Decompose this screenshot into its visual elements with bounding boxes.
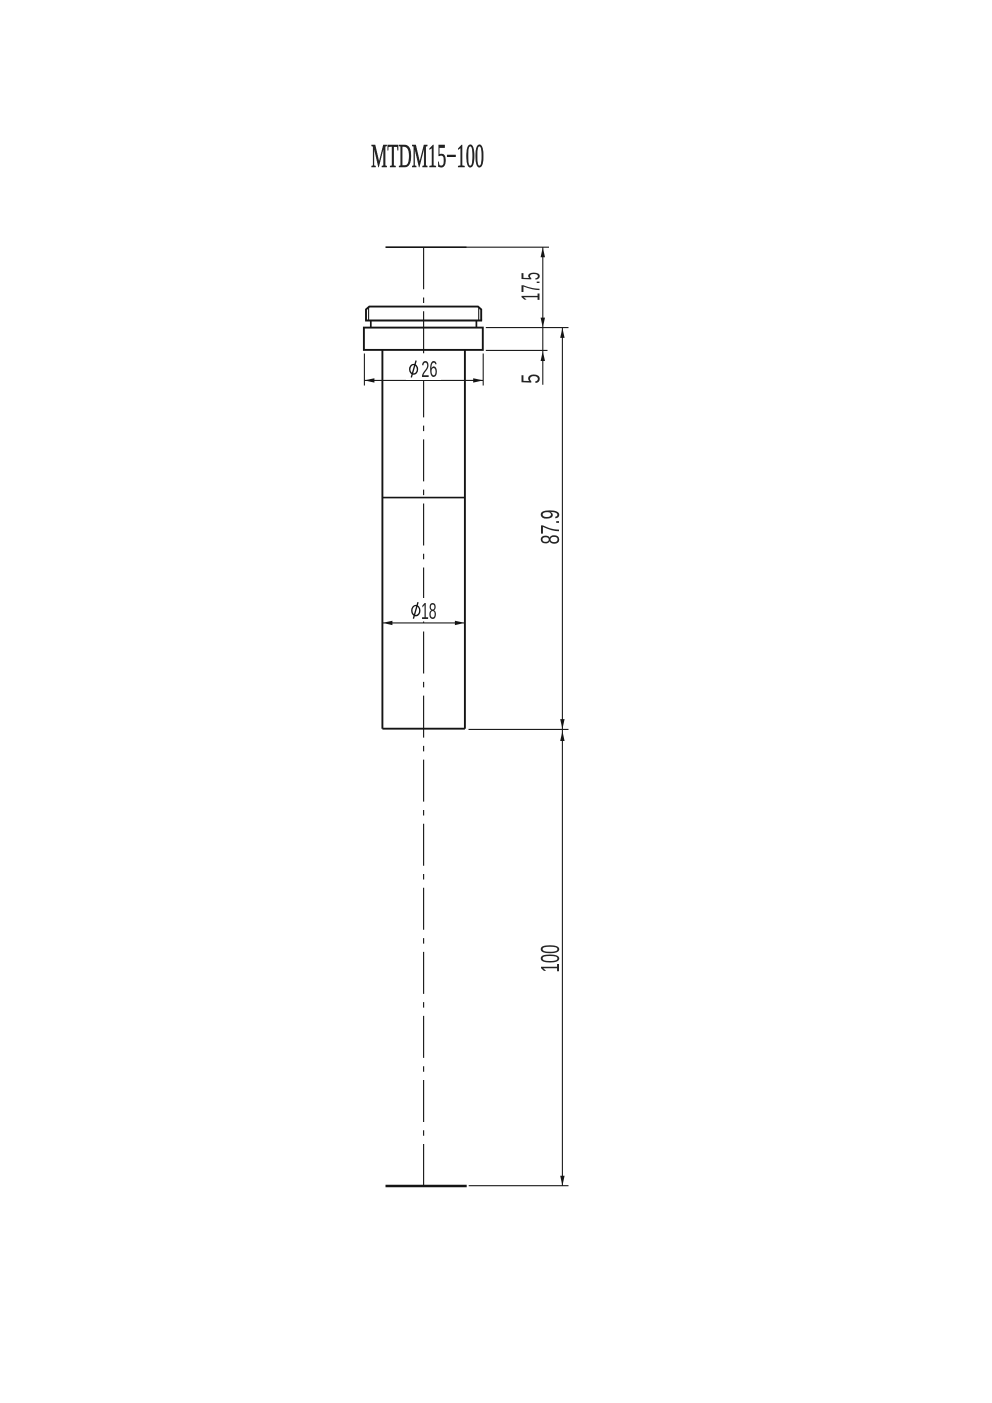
svg-text:MTDM15−100: MTDM15−100 — [371, 138, 484, 175]
svg-text:26: 26 — [421, 356, 437, 382]
svg-text:18: 18 — [421, 598, 437, 624]
svg-text:5: 5 — [516, 374, 546, 384]
svg-text:100: 100 — [535, 945, 565, 973]
svg-text:87.9: 87.9 — [535, 510, 565, 545]
svg-text:17.5: 17.5 — [516, 272, 546, 301]
